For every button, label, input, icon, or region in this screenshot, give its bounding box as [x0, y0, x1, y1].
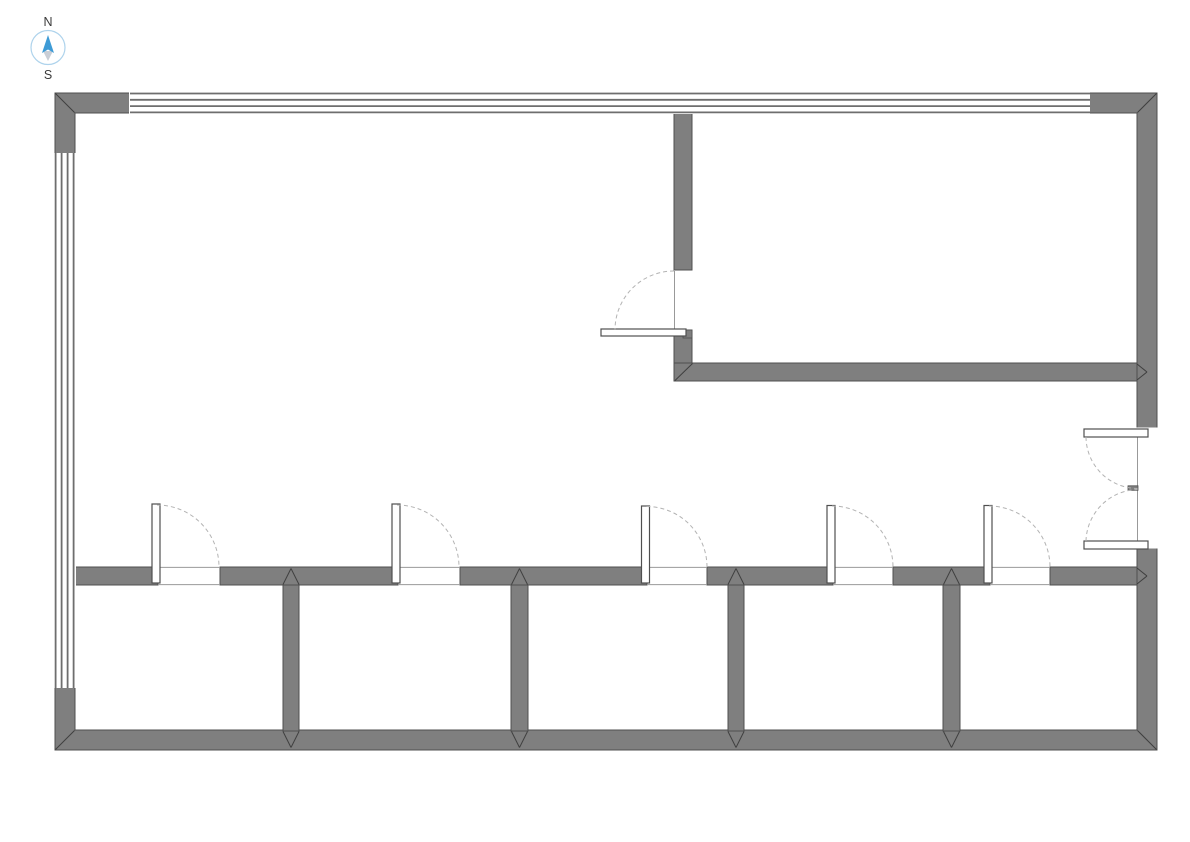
entry-opening — [1136, 428, 1159, 549]
corridor-wall-seg-3 — [460, 567, 647, 585]
room-door-5-leaf — [984, 506, 992, 584]
corridor-wall-seg-1 — [75, 567, 158, 585]
exterior-wall — [55, 93, 1157, 750]
room-door-5-swing-arc — [989, 506, 1050, 567]
upper-room-left-wall — [674, 113, 692, 270]
compass-south-label: S — [44, 68, 52, 82]
corridor-wall-seg-4 — [707, 567, 833, 585]
wall-joint-miters-group — [56, 94, 1157, 750]
room-divider-wall-2 — [511, 585, 528, 731]
entry-double-door-swing-arc — [1086, 490, 1138, 542]
room-divider-wall-1 — [283, 585, 299, 731]
room-door-4-swing-arc — [832, 506, 893, 567]
floor-plan-canvas: N S — [0, 0, 1190, 842]
room-door-2-swing-arc — [397, 505, 459, 567]
room-door-2-leaf — [392, 504, 400, 583]
entry-double-door-leaf — [1084, 429, 1148, 437]
doors-group — [152, 271, 1148, 583]
corridor-wall-seg-6 — [1050, 567, 1137, 585]
room-door-4-leaf — [827, 506, 835, 584]
corridor-wall-seg-2 — [220, 567, 398, 585]
window-top — [129, 92, 1090, 114]
exterior-walls-group — [55, 93, 1157, 750]
room-door-3-swing-arc — [647, 507, 708, 568]
room-divider-wall-3 — [728, 585, 744, 731]
upper-room-door-swing-arc — [615, 271, 674, 330]
room-door-3-leaf — [642, 506, 650, 583]
entry-double-door-swing-arc — [1086, 437, 1138, 489]
compass-north-label: N — [43, 15, 52, 29]
entry-double-door-leaf — [1084, 541, 1148, 549]
openings-group — [158, 271, 1159, 585]
interior-walls-group — [75, 113, 1137, 731]
room-divider-wall-4 — [943, 585, 960, 731]
upper-room-bottom-wall — [674, 363, 1137, 381]
upper-room-door-leaf — [601, 329, 686, 336]
room-door-1-leaf — [152, 504, 160, 583]
windows-group — [54, 92, 1090, 688]
compass-rose: N S — [31, 15, 65, 82]
corridor-wall-seg-5 — [893, 567, 990, 585]
room-door-1-swing-arc — [157, 505, 219, 567]
floor-plan-drawing: N S — [0, 0, 1190, 842]
